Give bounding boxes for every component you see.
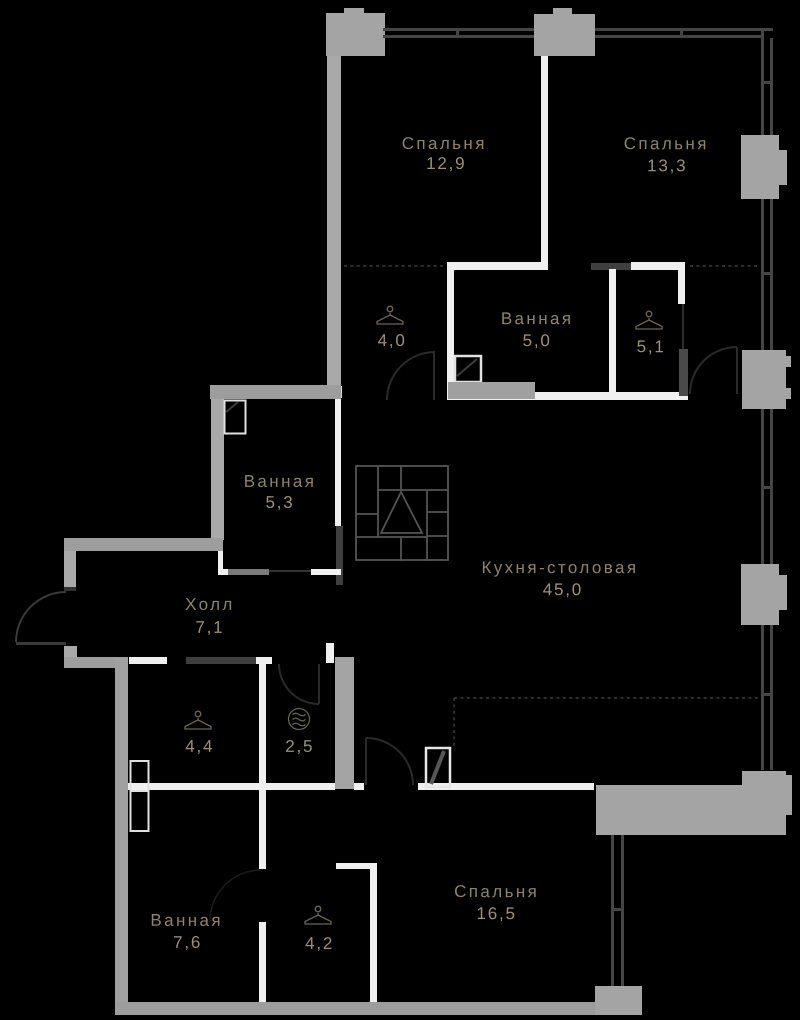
svg-text:Спальня: Спальня (402, 134, 487, 153)
svg-text:2,5: 2,5 (285, 737, 314, 756)
svg-text:Холл: Холл (185, 595, 235, 614)
svg-text:12,9: 12,9 (426, 154, 466, 173)
svg-text:4,4: 4,4 (185, 737, 214, 756)
svg-text:4,0: 4,0 (378, 331, 407, 350)
svg-text:5,1: 5,1 (637, 337, 666, 356)
svg-text:13,3: 13,3 (647, 156, 687, 175)
svg-text:16,5: 16,5 (477, 904, 517, 923)
svg-text:Кухня-столовая: Кухня-столовая (481, 558, 638, 577)
svg-text:Ванная: Ванная (244, 472, 317, 491)
svg-text:5,3: 5,3 (265, 493, 294, 512)
svg-text:Спальня: Спальня (624, 134, 709, 153)
svg-text:Ванная: Ванная (150, 911, 223, 930)
svg-text:45,0: 45,0 (543, 580, 583, 599)
svg-text:Ванная: Ванная (501, 309, 574, 328)
svg-text:Спальня: Спальня (454, 882, 539, 901)
svg-text:4,2: 4,2 (305, 934, 334, 953)
svg-text:5,0: 5,0 (523, 331, 552, 350)
svg-text:7,1: 7,1 (195, 618, 224, 637)
svg-text:7,6: 7,6 (173, 933, 202, 952)
